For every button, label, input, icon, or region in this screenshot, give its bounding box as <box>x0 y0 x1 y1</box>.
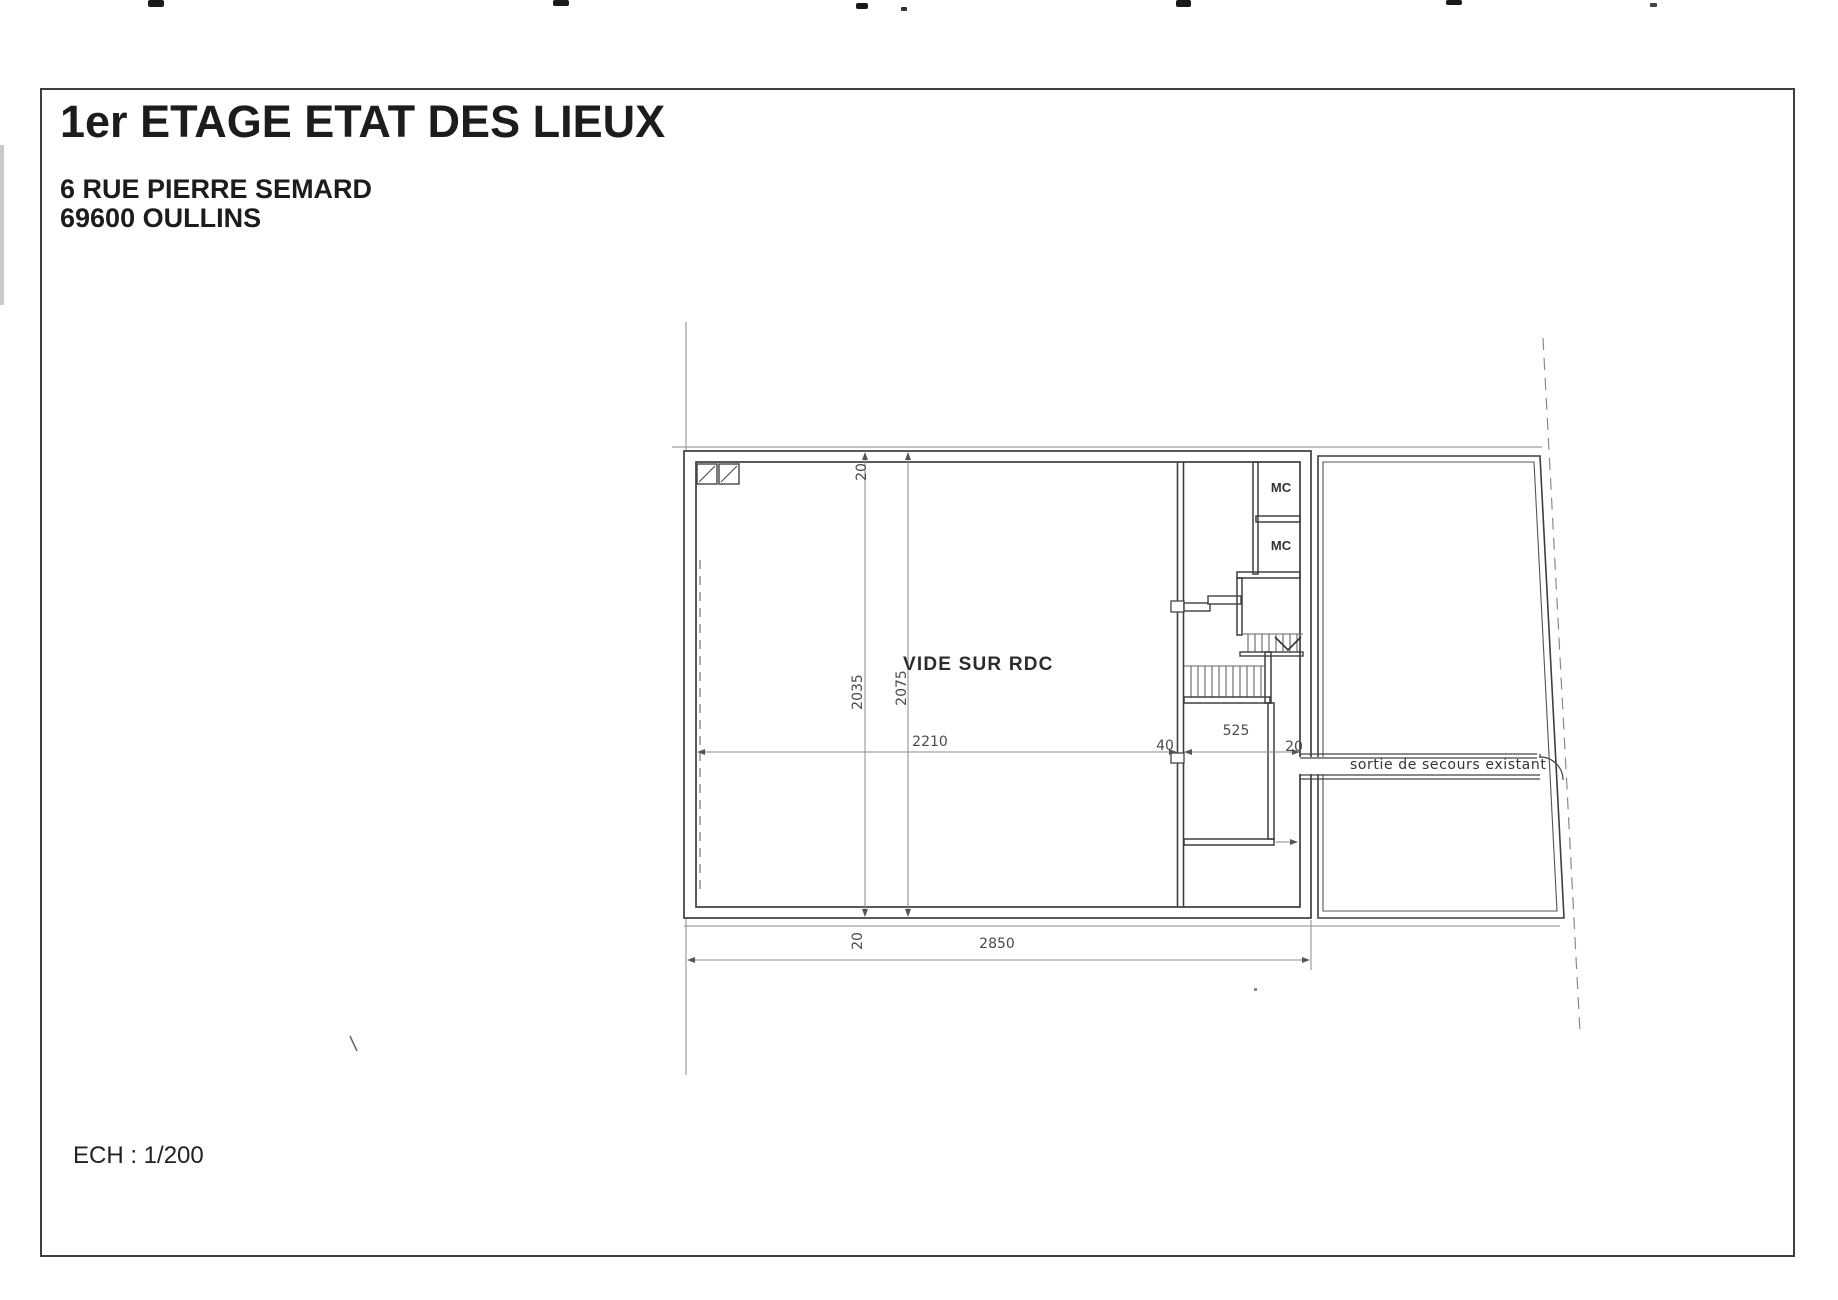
lower-flight-wall <box>1184 697 1270 703</box>
central-wall <box>1178 462 1184 907</box>
right-annex-walls <box>1318 456 1564 918</box>
corridor-opening-annex <box>1315 757 1326 774</box>
right-property-dashed-line <box>1543 338 1580 1032</box>
jog-wall <box>1184 596 1241 611</box>
room-label-wc-2: MC <box>1268 538 1294 553</box>
main-building-walls <box>684 451 1311 918</box>
emergency-exit-label: sortie de secours existant <box>1350 757 1546 773</box>
floor-plan-drawing <box>0 0 1838 1300</box>
scan-artifacts <box>0 0 1657 1051</box>
room-label-void: VIDE SUR RDC <box>903 654 1054 676</box>
dim-label-525: 525 <box>1219 723 1253 739</box>
dim-label-2035: 2035 <box>850 670 866 714</box>
dim-label-2075: 2075 <box>894 666 910 710</box>
door-jamb-icon <box>1171 601 1184 612</box>
scanned-floor-plan-page: 1er ETAGE ETAT DES LIEUX 6 RUE PIERRE SE… <box>0 0 1838 1300</box>
outer-wall <box>684 451 1311 918</box>
annex-outer-wall <box>1318 456 1564 918</box>
dim-label-40: 40 <box>1152 738 1178 754</box>
dim-label-wall-right: 20 <box>1282 739 1306 755</box>
stair-bay-wall <box>1268 703 1274 839</box>
dim-label-wall-bottom: 20 <box>850 927 866 955</box>
stair-stringer-wall <box>1265 652 1271 703</box>
lower-flight-treads <box>1191 666 1261 697</box>
corridor-opening-left <box>1296 757 1314 774</box>
landing-left-wall <box>1237 578 1242 635</box>
dim-label-2210: 2210 <box>900 734 960 750</box>
inner-wall <box>696 462 1300 907</box>
dim-label-2850: 2850 <box>967 936 1027 952</box>
dim-label-wall-top: 20 <box>854 458 870 486</box>
dimension-lines <box>688 453 1309 960</box>
wc-bottom-wall <box>1237 572 1300 578</box>
door-jamb-icon <box>1171 753 1184 763</box>
room-label-wc-1: MC <box>1268 480 1294 495</box>
window-symbols <box>697 464 739 484</box>
annex-inner-wall <box>1323 462 1557 911</box>
lower-interior-wall <box>1184 839 1297 845</box>
site-boundary-lines <box>672 322 1580 1075</box>
wc-divider-wall <box>1256 516 1300 522</box>
